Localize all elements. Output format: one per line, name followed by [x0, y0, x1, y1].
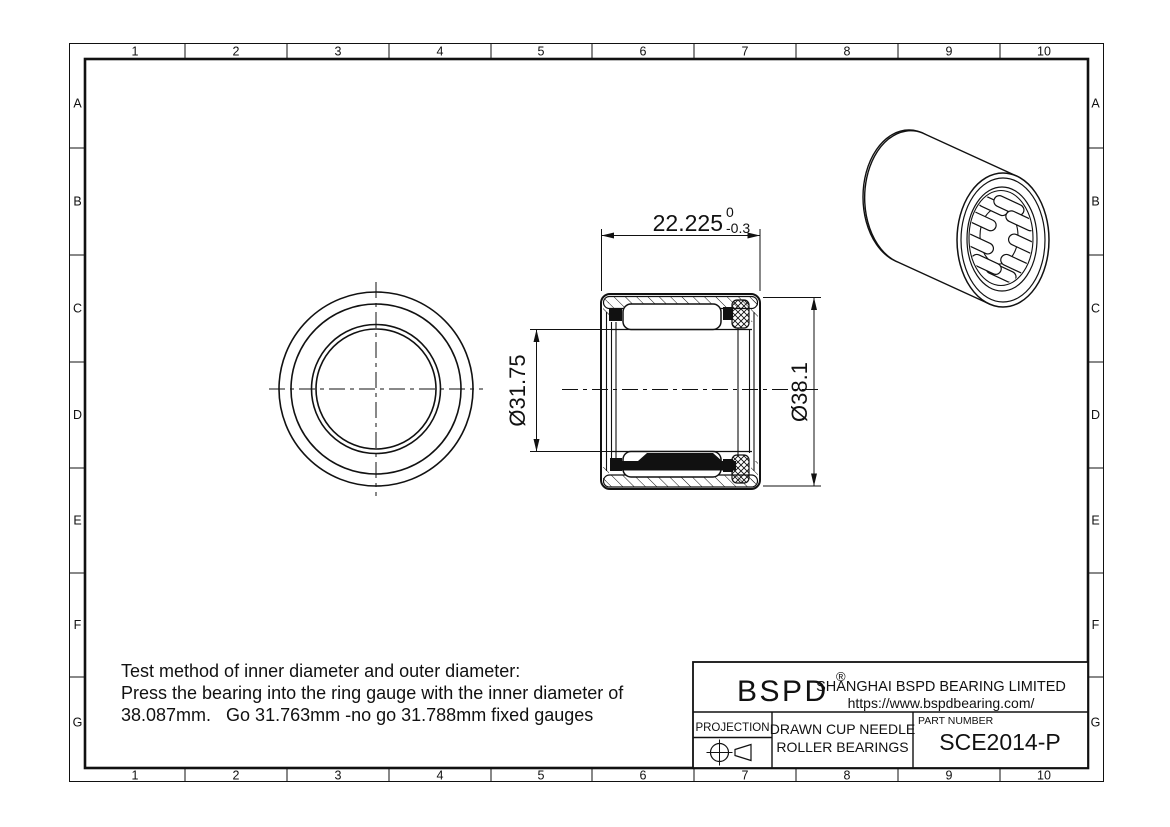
engineering-drawing-canvas: 12345678910 12345678910 ABCDEFG ABCDEFG	[0, 0, 1170, 827]
note-line-1: Test method of inner diameter and outer …	[121, 661, 520, 681]
grid-row-label: B	[73, 195, 81, 209]
arrowhead-bottom	[534, 439, 540, 452]
grid-col-label: 7	[742, 45, 749, 59]
grid-col-label: 5	[538, 45, 545, 59]
grid-col-label: 6	[640, 45, 647, 59]
grid-row-label: D	[1091, 408, 1100, 422]
grid-ticks-top	[185, 44, 1000, 60]
front-view	[269, 282, 483, 496]
grid-col-label: 9	[946, 769, 953, 783]
product-name-line2: ROLLER BEARINGS	[776, 739, 908, 755]
note-line-3: 38.087mm. Go 31.763mm -no go 31.788mm fi…	[121, 705, 593, 725]
grid-row-label: C	[1091, 302, 1100, 316]
needle-roller-top	[623, 304, 721, 330]
grid-row-labels-left: ABCDEFG	[73, 97, 83, 730]
grid-col-label: 7	[742, 769, 749, 783]
section-view	[562, 294, 820, 489]
grid-row-label: G	[1091, 716, 1101, 730]
dimension-bore-value: Ø31.75	[505, 354, 530, 426]
grid-col-label: 2	[233, 45, 240, 59]
grid-column-labels-bottom: 12345678910	[132, 769, 1051, 783]
grid-col-label: 8	[844, 769, 851, 783]
dimension-bore: Ø31.75	[505, 330, 613, 452]
drawing-sheet: 12345678910 12345678910 ABCDEFG ABCDEFG	[0, 0, 1170, 827]
dimension-outer-diameter: Ø38.1	[763, 298, 821, 487]
seal-crosshatch-bottom	[732, 455, 749, 483]
company-name: SHANGHAI BSPD BEARING LIMITED	[816, 679, 1066, 695]
dimension-width-tol-upper: 0	[726, 204, 734, 220]
grid-col-label: 3	[335, 45, 342, 59]
grid-column-labels-top: 12345678910	[132, 45, 1051, 59]
grid-col-label: 4	[437, 769, 444, 783]
company-website: https://www.bspdbearing.com/	[848, 695, 1035, 711]
arrowhead-top	[534, 330, 540, 343]
seal-crosshatch-top	[732, 300, 749, 328]
grid-col-label: 1	[132, 45, 139, 59]
grid-col-label: 8	[844, 45, 851, 59]
grid-row-label: D	[73, 408, 82, 422]
arrowhead-top	[811, 298, 817, 311]
test-method-note: Test method of inner diameter and outer …	[121, 661, 624, 725]
product-name-line1: DRAWN CUP NEEDLE	[770, 721, 915, 737]
grid-col-label: 10	[1037, 45, 1051, 59]
part-number-value: SCE2014-P	[939, 729, 1060, 755]
dimension-od-value: Ø38.1	[787, 362, 812, 422]
grid-col-label: 6	[640, 769, 647, 783]
grid-row-label: F	[1092, 618, 1100, 632]
title-block: BSPD ® SHANGHAI BSPD BEARING LIMITED htt…	[693, 662, 1088, 768]
grid-row-label: A	[1091, 97, 1100, 111]
grid-row-labels-right: ABCDEFG	[1091, 97, 1101, 730]
arrowhead-left	[602, 233, 615, 239]
projection-label: PROJECTION	[695, 722, 769, 734]
isometric-view	[863, 130, 1049, 307]
grid-col-label: 10	[1037, 769, 1051, 783]
grid-ticks-bottom	[185, 768, 1000, 782]
grid-row-label: E	[73, 514, 81, 528]
grid-col-label: 3	[335, 769, 342, 783]
grid-col-label: 1	[132, 769, 139, 783]
grid-row-label: F	[74, 618, 82, 632]
dimension-width-value: 22.225	[653, 210, 723, 236]
grid-row-label: B	[1091, 195, 1099, 209]
grid-row-label: A	[73, 97, 82, 111]
dimension-width: 22.225 0 -0.3	[602, 204, 761, 291]
grid-col-label: 2	[233, 769, 240, 783]
grid-row-label: C	[73, 302, 82, 316]
width-extension-lines	[602, 229, 761, 291]
grid-row-label: G	[73, 716, 83, 730]
grid-col-label: 4	[437, 45, 444, 59]
grid-col-label: 5	[538, 769, 545, 783]
grid-row-label: E	[1091, 514, 1099, 528]
dimension-width-tol-lower: -0.3	[726, 220, 750, 236]
grid-col-label: 9	[946, 45, 953, 59]
note-line-2: Press the bearing into the ring gauge wi…	[121, 683, 624, 703]
arrowhead-bottom	[811, 474, 817, 487]
seal-block-top-left	[609, 308, 622, 321]
part-number-label: PART NUMBER	[918, 715, 994, 727]
bspd-logo: BSPD	[737, 675, 829, 708]
